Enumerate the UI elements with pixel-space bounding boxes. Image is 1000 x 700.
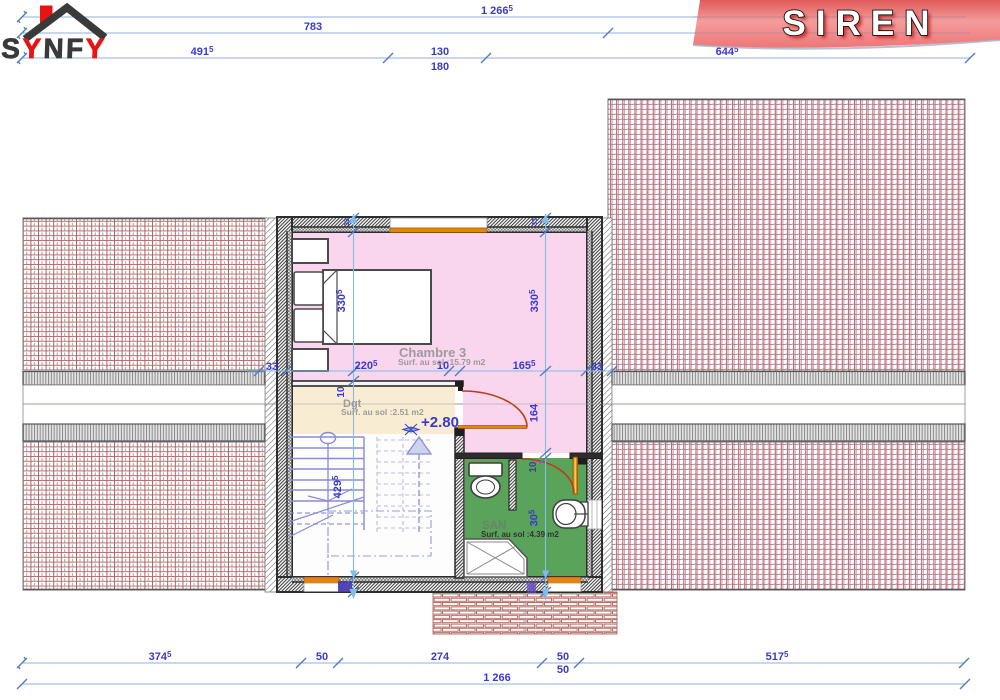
svg-text:130: 130 [431,46,449,58]
svg-text:10: 10 [528,461,539,473]
svg-text:33: 33 [591,361,603,373]
svg-text:50: 50 [316,651,328,663]
svg-text:Surf. au sol :15.79 m2: Surf. au sol :15.79 m2 [398,357,486,367]
svg-text:50: 50 [529,583,536,591]
svg-text:SIREN: SIREN [783,4,940,43]
svg-text:164: 164 [529,403,541,422]
svg-text:SYNFY: SYNFY [1,33,107,64]
svg-text:33: 33 [532,218,539,226]
svg-text:33: 33 [266,361,278,373]
svg-text:+2.80: +2.80 [421,414,459,431]
svg-text:Surf. au sol :2.51 m2: Surf. au sol :2.51 m2 [341,407,424,417]
svg-text:180: 180 [431,61,449,73]
svg-text:1 266: 1 266 [483,672,511,684]
svg-text:33: 33 [344,218,351,226]
svg-text:10: 10 [336,386,347,398]
svg-text:783: 783 [304,21,322,33]
svg-text:274: 274 [431,651,450,663]
svg-text:Surf. au sol :4.39 m2: Surf. au sol :4.39 m2 [481,530,559,539]
svg-text:50: 50 [557,664,569,676]
svg-text:50: 50 [557,651,569,663]
